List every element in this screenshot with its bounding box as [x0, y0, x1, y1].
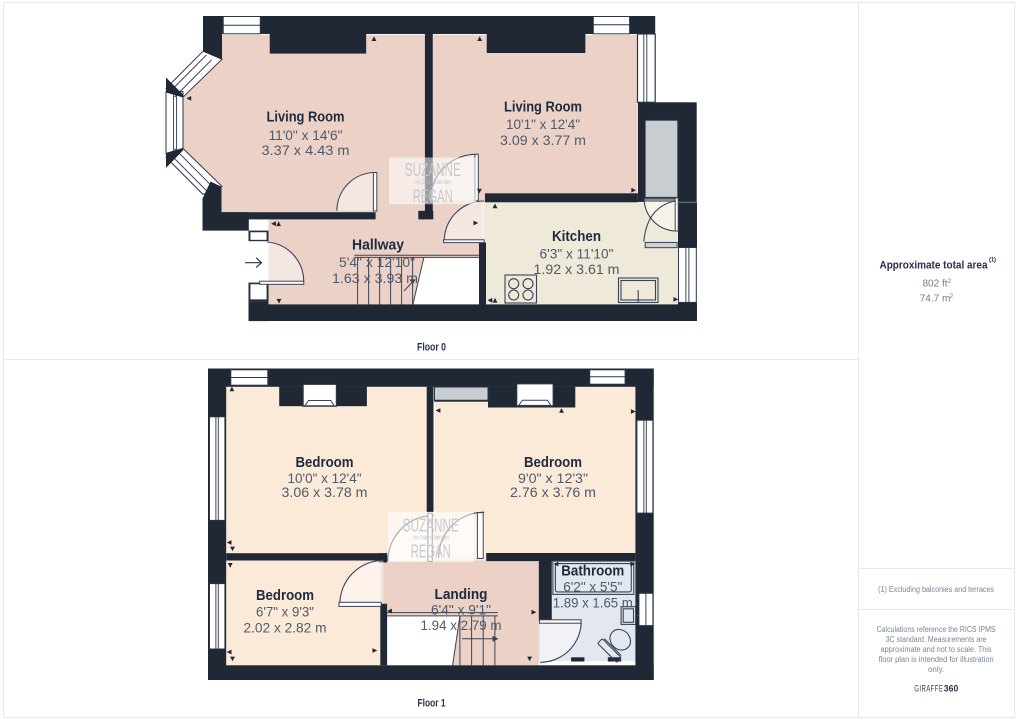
svg-text:6'4" x 9'1": 6'4" x 9'1": [431, 602, 491, 618]
svg-text:SUZANNE: SUZANNE: [403, 515, 459, 536]
svg-text:Hallway: Hallway: [352, 237, 405, 254]
svg-text:6'7" x 9'3": 6'7" x 9'3": [256, 604, 314, 620]
svg-text:Approximate total area: Approximate total area: [880, 259, 989, 271]
svg-text:1.63 x 3.93 m: 1.63 x 3.93 m: [332, 270, 418, 286]
svg-text:Bedroom: Bedroom: [524, 454, 582, 471]
svg-text:Your Country Estate Agent: Your Country Estate Agent: [415, 179, 452, 186]
svg-text:only.: only.: [928, 665, 944, 674]
svg-text:Landing: Landing: [435, 586, 488, 603]
svg-text:Bathroom: Bathroom: [561, 563, 624, 580]
svg-text:2: 2: [948, 278, 952, 285]
svg-text:1.92 x 3.61 m: 1.92 x 3.61 m: [534, 261, 620, 277]
svg-text:floor plan is intended for ill: floor plan is intended for illustration: [879, 655, 994, 664]
svg-text:Bedroom: Bedroom: [256, 587, 314, 604]
svg-text:11'0" x 14'6": 11'0" x 14'6": [269, 127, 343, 143]
svg-text:3C standard. Measurements are: 3C standard. Measurements are: [886, 635, 987, 644]
svg-text:Calculations reference the RIC: Calculations reference the RICS IPMS: [877, 625, 996, 634]
svg-text:(1) Excluding balconies and te: (1) Excluding balconies and terraces: [878, 585, 994, 594]
svg-text:6'3" x 11'10": 6'3" x 11'10": [540, 246, 614, 262]
svg-text:6'2" x 5'5": 6'2" x 5'5": [563, 579, 622, 595]
svg-text:Floor 1: Floor 1: [418, 698, 446, 710]
svg-text:Floor 0: Floor 0: [417, 341, 446, 353]
svg-text:GIRAFFE: GIRAFFE: [914, 683, 943, 693]
svg-text:3.37 x 4.43 m: 3.37 x 4.43 m: [262, 142, 350, 158]
svg-text:(1): (1): [989, 258, 996, 264]
svg-text:Living Room: Living Room: [267, 109, 345, 126]
svg-text:1.94 x 2.79 m: 1.94 x 2.79 m: [421, 617, 502, 633]
svg-text:Your Country Estate Agent: Your Country Estate Agent: [413, 535, 450, 542]
svg-text:REGAN: REGAN: [411, 541, 451, 562]
svg-text:74.7 m: 74.7 m: [920, 293, 951, 304]
svg-text:REGAN: REGAN: [413, 185, 453, 206]
svg-text:Bedroom: Bedroom: [296, 454, 354, 471]
svg-text:2: 2: [950, 293, 954, 300]
svg-text:3.09 x 3.77 m: 3.09 x 3.77 m: [500, 132, 586, 148]
svg-text:Kitchen: Kitchen: [552, 228, 601, 245]
svg-text:2.02 x 2.82 m: 2.02 x 2.82 m: [244, 620, 327, 636]
svg-text:5'4" x 12'10": 5'4" x 12'10": [339, 254, 415, 270]
svg-text:2.76 x 3.76 m: 2.76 x 3.76 m: [510, 484, 596, 500]
svg-text:1.89 x 1.65 m: 1.89 x 1.65 m: [553, 595, 633, 611]
svg-text:approximate and not to scale.: approximate and not to scale. This: [881, 645, 992, 654]
svg-text:3.06 x 3.78 m: 3.06 x 3.78 m: [282, 484, 368, 500]
svg-text:Living Room: Living Room: [504, 98, 582, 115]
svg-text:10'1" x 12'4": 10'1" x 12'4": [506, 116, 580, 132]
svg-text:360: 360: [944, 683, 959, 693]
svg-text:SUZANNE: SUZANNE: [405, 159, 461, 180]
svg-text:802 ft: 802 ft: [922, 278, 947, 289]
